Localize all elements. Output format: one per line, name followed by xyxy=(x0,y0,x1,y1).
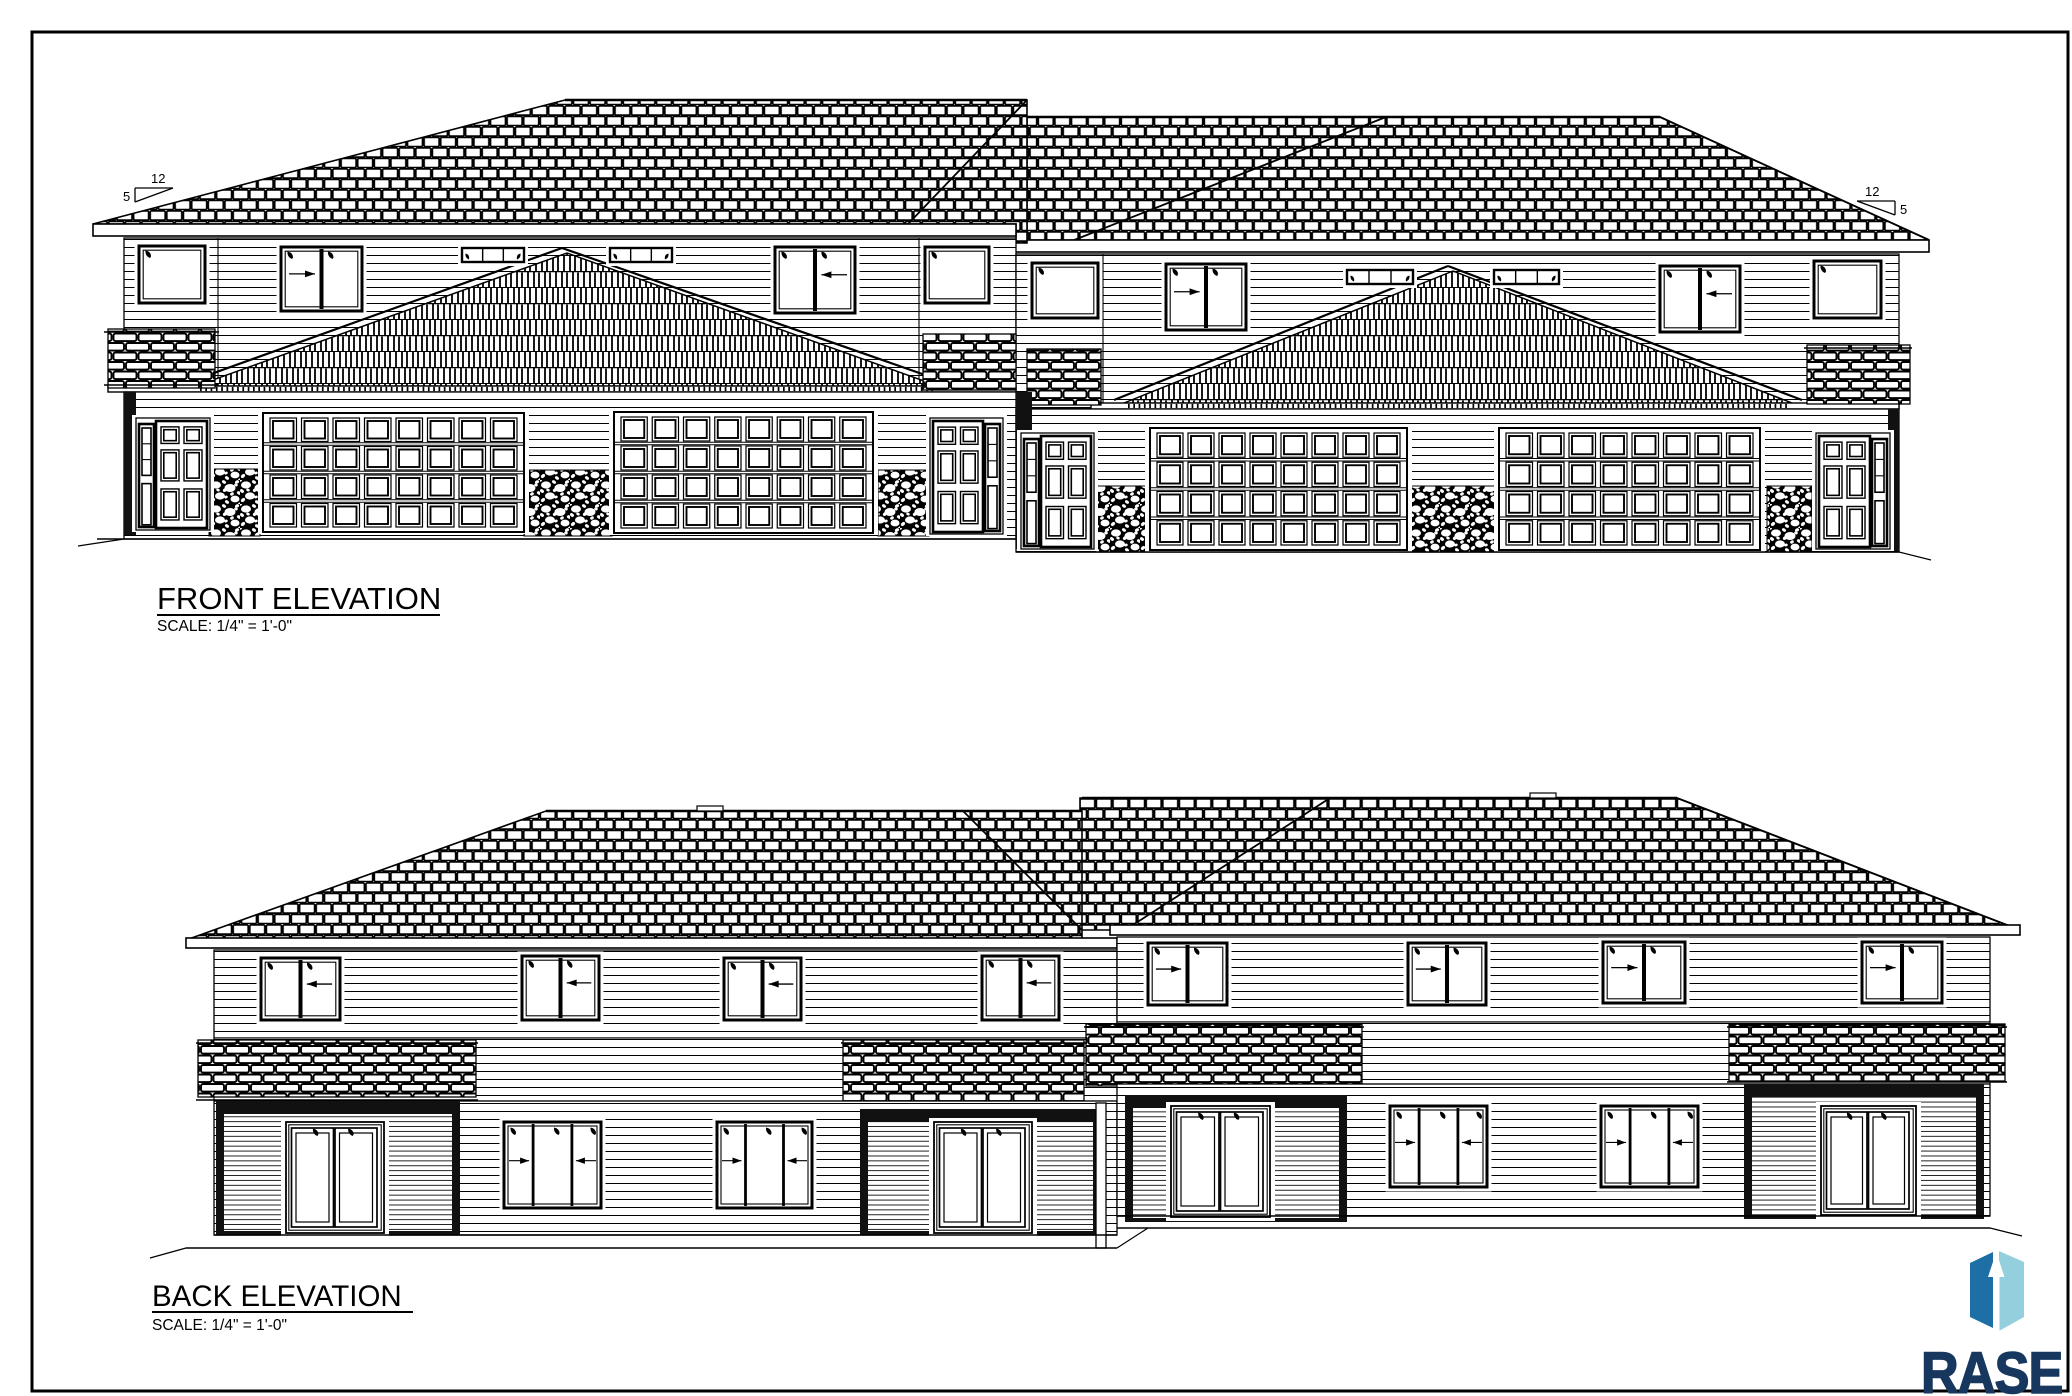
svg-text:5: 5 xyxy=(123,189,130,204)
svg-text:SCALE: 1/4" = 1'-0": SCALE: 1/4" = 1'-0" xyxy=(157,618,292,635)
svg-text:5: 5 xyxy=(1900,202,1907,217)
svg-text:12: 12 xyxy=(1865,184,1879,199)
svg-text:BACK ELEVATION: BACK ELEVATION xyxy=(152,1280,402,1313)
svg-text:RASE: RASE xyxy=(1921,1340,2062,1396)
svg-text:12: 12 xyxy=(151,171,165,186)
svg-text:SCALE: 1/4" = 1'-0": SCALE: 1/4" = 1'-0" xyxy=(152,1317,287,1334)
svg-text:FRONT ELEVATION: FRONT ELEVATION xyxy=(157,581,441,616)
